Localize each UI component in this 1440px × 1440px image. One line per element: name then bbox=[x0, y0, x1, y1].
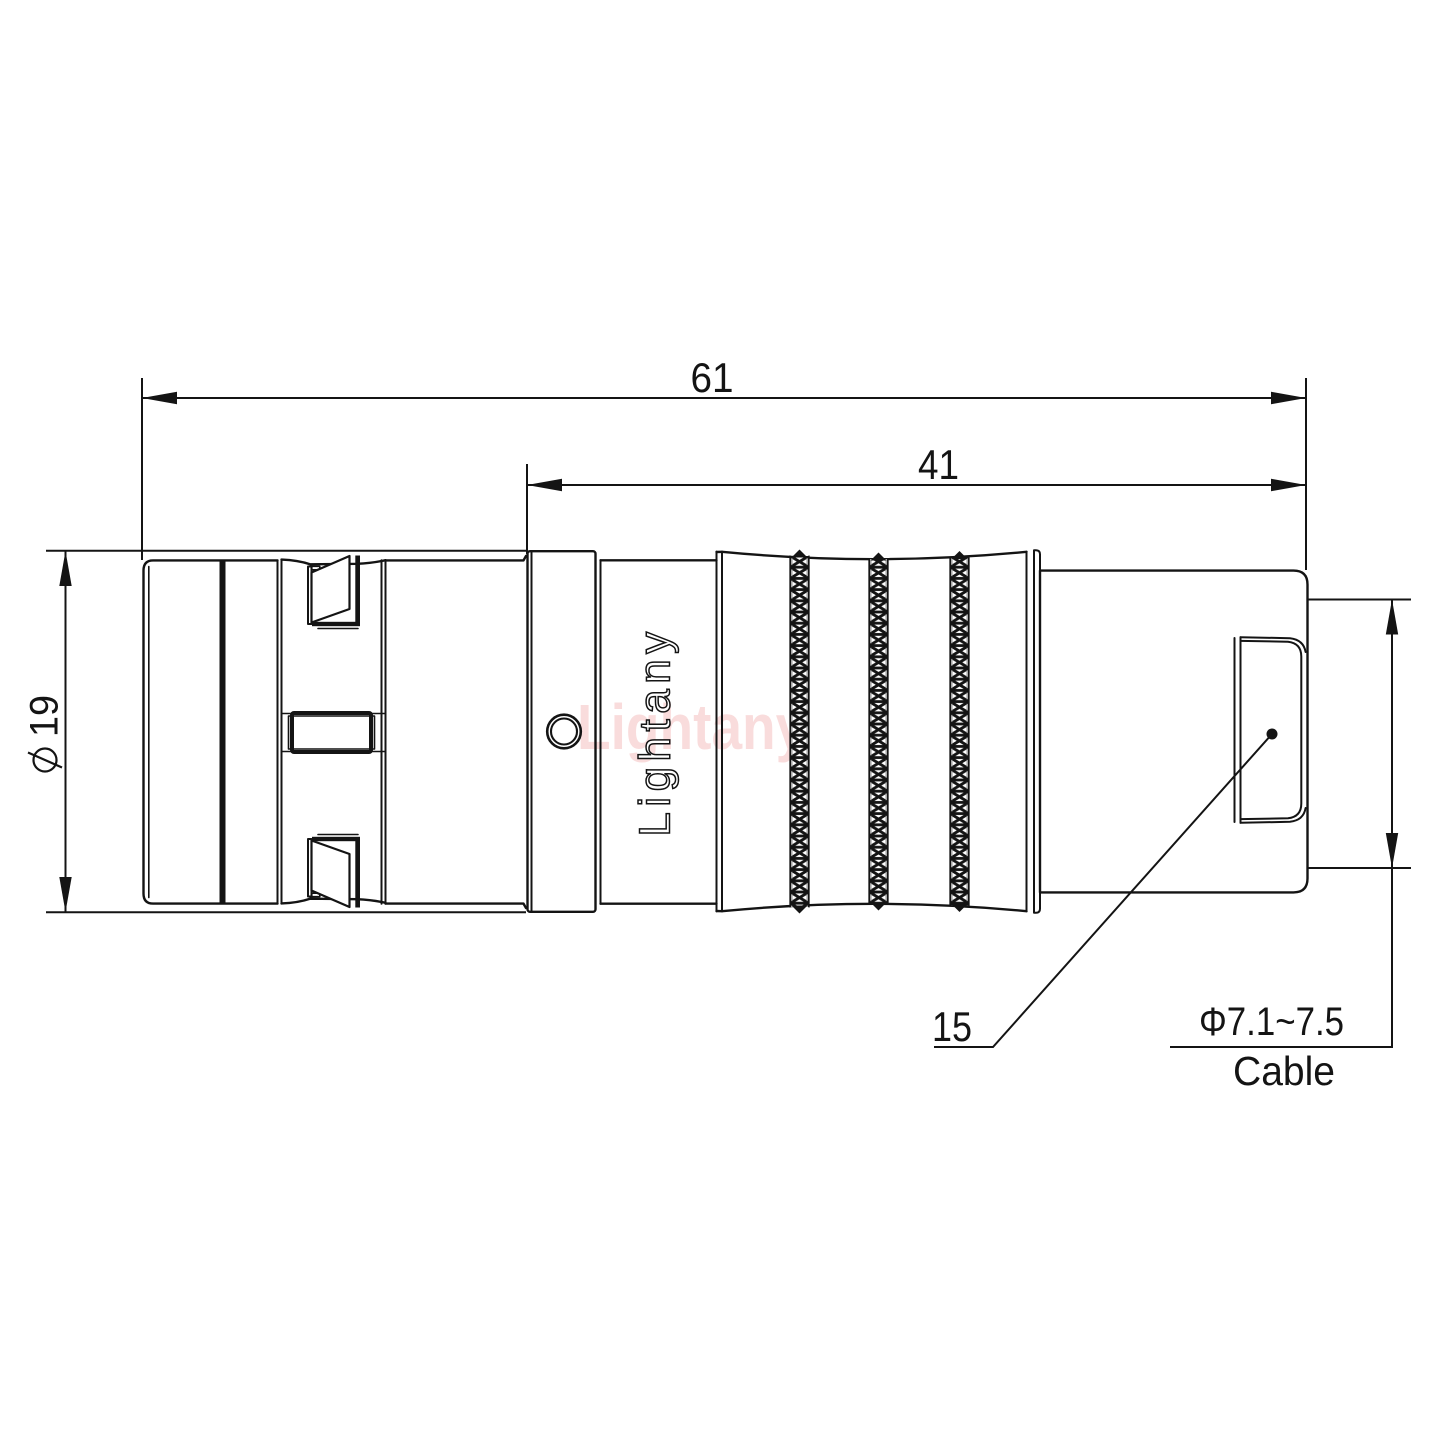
svg-text:Φ7.1~7.5: Φ7.1~7.5 bbox=[1199, 1000, 1344, 1044]
svg-text:61: 61 bbox=[691, 354, 734, 401]
svg-text:Lightany: Lightany bbox=[631, 626, 680, 836]
svg-text:Cable: Cable bbox=[1233, 1048, 1335, 1094]
svg-text:41: 41 bbox=[918, 441, 959, 488]
svg-text:19: 19 bbox=[23, 695, 67, 737]
svg-text:Lightany: Lightany bbox=[577, 691, 806, 763]
svg-text:15: 15 bbox=[932, 1003, 972, 1050]
